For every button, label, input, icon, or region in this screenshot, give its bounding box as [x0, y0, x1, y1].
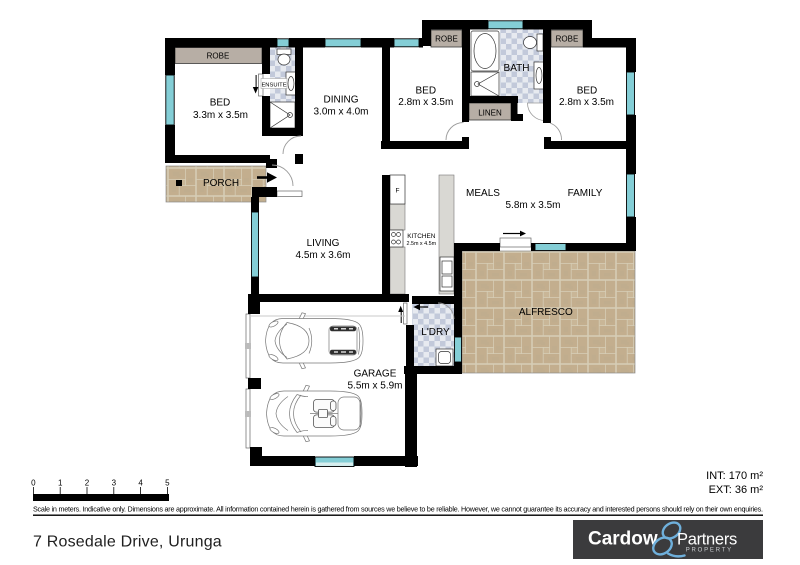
svg-text:LIVING: LIVING	[307, 238, 340, 249]
svg-text:7 Rosedale Drive, Urunga: 7 Rosedale Drive, Urunga	[33, 534, 222, 551]
svg-text:BED: BED	[416, 86, 437, 97]
svg-text:ROBE: ROBE	[556, 35, 579, 44]
svg-text:0: 0	[31, 479, 36, 488]
svg-text:BATH: BATH	[504, 63, 530, 74]
svg-text:Cardow: Cardow	[588, 529, 658, 550]
svg-text:5.8m x 3.5m: 5.8m x 3.5m	[505, 200, 560, 211]
svg-text:5.5m x 5.9m: 5.5m x 5.9m	[347, 381, 402, 392]
svg-text:3.0m x 4.0m: 3.0m x 4.0m	[313, 107, 368, 118]
svg-text:FAMILY: FAMILY	[568, 188, 603, 199]
svg-text:EXT: 36 m²: EXT: 36 m²	[709, 484, 764, 496]
svg-text:Scale in meters. Indicative on: Scale in meters. Indicative only. Dimens…	[33, 505, 763, 514]
svg-text:2: 2	[85, 479, 90, 488]
svg-text:5: 5	[165, 479, 170, 488]
svg-text:DINING: DINING	[324, 95, 359, 106]
svg-text:3: 3	[112, 479, 117, 488]
svg-text:ALFRESCO: ALFRESCO	[519, 307, 573, 318]
svg-text:2.8m x 3.5m: 2.8m x 3.5m	[398, 97, 453, 108]
svg-text:BED: BED	[210, 98, 231, 109]
svg-text:INT: 170 m²: INT: 170 m²	[706, 470, 763, 482]
svg-text:KITCHEN: KITCHEN	[407, 233, 435, 240]
svg-text:ENSUITE: ENSUITE	[261, 83, 286, 89]
svg-text:4: 4	[138, 479, 143, 488]
svg-text:ROBE: ROBE	[435, 35, 458, 44]
svg-text:1: 1	[58, 479, 63, 488]
svg-text:F: F	[396, 188, 400, 195]
svg-text:2.8m x 3.5m: 2.8m x 3.5m	[559, 97, 614, 108]
svg-text:GARAGE: GARAGE	[354, 368, 397, 379]
svg-text:PORCH: PORCH	[203, 178, 239, 189]
svg-text:3.3m x 3.5m: 3.3m x 3.5m	[193, 110, 248, 121]
svg-text:ROBE: ROBE	[207, 52, 230, 61]
svg-text:2.5m x 4.5m: 2.5m x 4.5m	[406, 241, 436, 247]
svg-text:PROPERTY: PROPERTY	[686, 548, 733, 554]
svg-text:MEALS: MEALS	[466, 188, 500, 199]
svg-text:LINEN: LINEN	[478, 109, 502, 118]
svg-text:L'DRY: L'DRY	[421, 327, 450, 338]
svg-text:Partners: Partners	[677, 531, 737, 549]
svg-text:4.5m x 3.6m: 4.5m x 3.6m	[295, 250, 350, 261]
svg-text:BED: BED	[577, 86, 598, 97]
